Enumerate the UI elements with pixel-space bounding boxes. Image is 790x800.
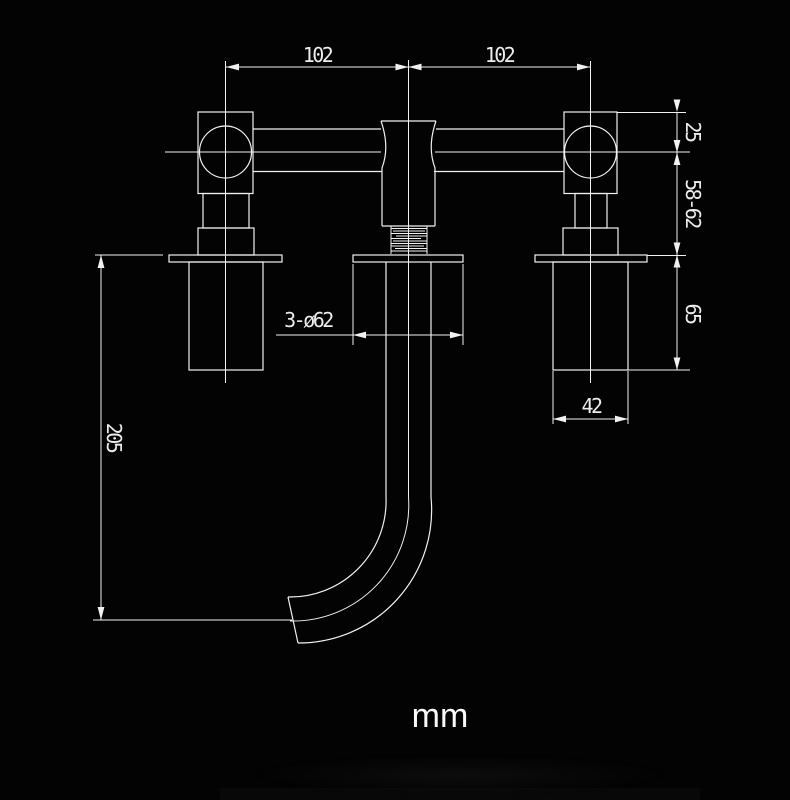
dim-label-depth-range: 58-62	[683, 179, 703, 227]
dim-label-span-left: 102	[303, 45, 332, 65]
spout-body-right-side	[431, 121, 436, 226]
dim-label-handle-height: 25	[683, 121, 703, 140]
dim-label-escutcheon: 3-ø62	[284, 310, 332, 330]
spout-body-left-side	[381, 121, 386, 226]
faucet-technical-drawing: 102 102 25 58-62 65 205 3-ø62 42 mm	[0, 0, 790, 800]
spout-axis-centerline	[290, 60, 409, 621]
center-spout-assembly	[288, 121, 463, 643]
dimension-linework	[93, 64, 690, 620]
dim-label-spout-drop: 205	[104, 423, 124, 452]
dim-label-span-right: 102	[485, 45, 514, 65]
dim-label-sleeve-width: 42	[581, 396, 600, 416]
faint-bottom-band	[220, 788, 700, 800]
dim-label-sleeve-length: 65	[683, 303, 703, 322]
unit-label: mm	[412, 699, 469, 733]
line-drawing	[0, 0, 790, 800]
centerlines	[165, 60, 690, 621]
